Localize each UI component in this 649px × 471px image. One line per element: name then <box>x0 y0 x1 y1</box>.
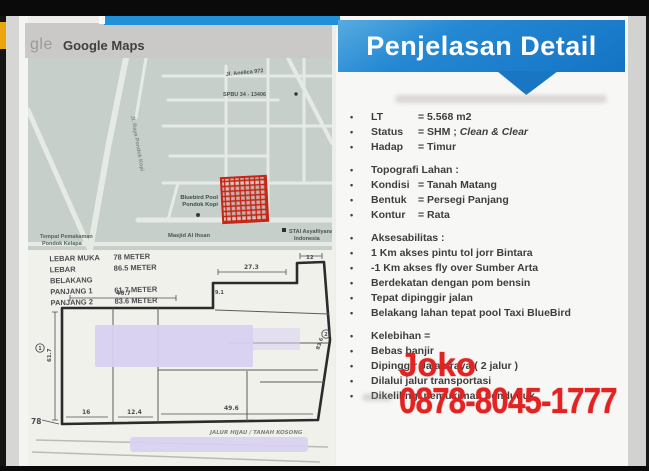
item-text: Tepat dipinggir jalan <box>371 292 473 304</box>
map-bluebird-label-1: Bluebird Pool <box>180 195 218 201</box>
map-road-label: Jl. Raya Pondok Kopi <box>129 115 145 172</box>
item-label: Hadap <box>371 140 418 155</box>
bullet-text: LT= 5.568 m2 <box>371 110 626 125</box>
bullet-item: •Topografi Lahan : <box>350 163 626 178</box>
item-text: Belakang lahan tepat pool Taxi BlueBird <box>371 307 571 319</box>
contact-name: Joko <box>399 346 476 384</box>
bullet-icon: • <box>350 359 371 374</box>
item-label: Bentuk <box>371 193 418 208</box>
dim-back-seg3: 12 <box>306 255 314 261</box>
marker-1: 1 <box>38 346 42 352</box>
bullet-icon: • <box>350 276 371 291</box>
map-cemetery-label-2: Pondok Kelapa <box>42 241 83 247</box>
bullet-icon: • <box>350 291 371 306</box>
blurred-text-line <box>395 95 607 103</box>
sketch-notes: LEBAR MUKA78 METERLEBAR BELAKANG86.5 MET… <box>49 251 157 309</box>
item-text: Kelebihan = <box>371 330 430 342</box>
bullet-text: Hadap= Timur <box>371 140 626 155</box>
right-gray-strip <box>628 16 647 466</box>
map-masjid-label: Masjid Al Ihsan <box>168 233 210 239</box>
bullet-icon: • <box>350 178 371 193</box>
dim-right-side: 83.6 <box>315 337 325 351</box>
bullet-icon: • <box>350 163 371 178</box>
bullet-text: -1 Km akses fly over Sumber Arta <box>371 261 626 276</box>
item-text: 1 Km akses pintu tol jorr Bintara <box>371 247 533 259</box>
note-label: PANJANG 2 <box>50 296 114 309</box>
item-text: Topografi Lahan : <box>371 164 459 176</box>
title-banner: Penjelasan Detail <box>338 20 625 72</box>
bullet-item: •LT= 5.568 m2 <box>350 110 626 125</box>
google-logo-partial: gle <box>30 36 53 54</box>
item-text: Aksesabilitas : <box>371 232 445 244</box>
stai-marker-icon <box>282 228 286 232</box>
google-maps-header: gle Google Maps <box>25 23 332 58</box>
bullet-icon: • <box>350 110 371 125</box>
dim-bottom-seg3: 49.6 <box>224 405 239 412</box>
bullet-group: •LT= 5.568 m2•Status= SHM ; Clean & Clea… <box>350 110 626 155</box>
bullet-text: Status= SHM ; Clean & Clear <box>371 125 626 140</box>
map-stai-label-2: Indonesia <box>294 236 321 242</box>
map-svg: Jl. Anelica 972 SPBU 34 - 13406 Bluebird… <box>28 58 332 250</box>
item-value: = SHM ; <box>418 126 460 138</box>
map-spbu-label: SPBU 34 - 13406 <box>223 92 266 98</box>
bullet-item: •Belakang lahan tepat pool Taxi BlueBird <box>350 306 626 321</box>
dim-step: 9.1 <box>215 290 224 296</box>
dim-back-seg2: 27.3 <box>244 264 259 271</box>
item-value-italic: Clean & Clear <box>460 126 528 138</box>
map-poi-dot-icon <box>196 213 200 217</box>
bullet-icon: • <box>350 261 371 276</box>
bullet-group: •Topografi Lahan :•Kondisi= Tanah Matang… <box>350 163 626 223</box>
item-label: Status <box>371 125 418 140</box>
dim-bottom-seg2: 12.4 <box>127 409 142 416</box>
dim-front-width: 78 <box>31 417 41 426</box>
bullet-icon: • <box>350 374 371 389</box>
bullet-icon: • <box>350 246 371 261</box>
bullet-icon: • <box>350 140 371 155</box>
bullet-item: •Dipinggir Jalan raya ( 2 jalur ) <box>350 359 626 374</box>
bullet-text: Kelebihan = <box>371 329 626 344</box>
bullet-icon: • <box>350 231 371 246</box>
note-value: 86.5 METER <box>114 262 157 285</box>
land-sketch: LEBAR MUKA78 METERLEBAR BELAKANG86.5 MET… <box>28 250 335 466</box>
sketch-road-label: JALUR HIJAU / TANAH KOSONG <box>209 430 303 436</box>
dim-left-side: 61.7 <box>47 348 53 362</box>
slide-content: gle Google Maps <box>0 16 649 466</box>
bullet-text: Tepat dipinggir jalan <box>371 291 626 306</box>
item-value: = Tanah Matang <box>418 179 497 191</box>
left-white-strip <box>19 16 28 466</box>
item-text: Berdekatan dengan pom bensin <box>371 277 530 289</box>
detail-list: •LT= 5.568 m2•Status= SHM ; Clean & Clea… <box>350 110 626 412</box>
screenshot-stage: gle Google Maps <box>0 0 649 471</box>
bullet-item: •Bebas banjir <box>350 344 626 359</box>
item-value: = Timur <box>418 141 456 153</box>
strip-notch <box>99 16 105 24</box>
map-bluebird-label-2: Pondok Kopi <box>182 202 218 208</box>
bullet-item: •Berdekatan dengan pom bensin <box>350 276 626 291</box>
contact-phone: 0878-8045-1777 <box>399 380 617 422</box>
bullet-icon: • <box>350 329 371 344</box>
item-value: = Rata <box>418 209 450 221</box>
spbu-dot-icon <box>294 92 297 95</box>
note-value: 83.6 METER <box>114 295 157 307</box>
bullet-item: •Hadap= Timur <box>350 140 626 155</box>
item-text: -1 Km akses fly over Sumber Arta <box>371 262 538 274</box>
bullet-text: Topografi Lahan : <box>371 163 626 178</box>
bullet-item: •Tepat dipinggir jalan <box>350 291 626 306</box>
bullet-text: Aksesabilitas : <box>371 231 626 246</box>
page-title: Penjelasan Detail <box>366 31 597 62</box>
bullet-item: •-1 Km akses fly over Sumber Arta <box>350 261 626 276</box>
bullet-text: Berdekatan dengan pom bensin <box>371 276 626 291</box>
bullet-item: •1 Km akses pintu tol jorr Bintara <box>350 246 626 261</box>
bullet-icon: • <box>350 208 371 223</box>
google-maps-title: Google Maps <box>63 38 145 53</box>
marker-2: 2 <box>324 332 328 338</box>
bullet-text: Bentuk= Persegi Panjang <box>371 193 626 208</box>
item-label: LT <box>371 110 418 125</box>
item-label: Kondisi <box>371 178 418 193</box>
bullet-item: •Status= SHM ; Clean & Clear <box>350 125 626 140</box>
land-plot-hatch <box>221 176 268 223</box>
map-roads <box>28 58 332 250</box>
item-label: Kontur <box>371 208 418 223</box>
bullet-item: •Bentuk= Persegi Panjang <box>350 193 626 208</box>
item-value: = 5.568 m2 <box>418 111 471 123</box>
bullet-icon: • <box>350 306 371 321</box>
bullet-icon: • <box>350 125 371 140</box>
left-gray-strip <box>6 16 19 466</box>
item-value: = Persegi Panjang <box>418 194 509 206</box>
bullet-item: •Aksesabilitas : <box>350 231 626 246</box>
bullet-icon: • <box>350 193 371 208</box>
bullet-icon: • <box>350 344 371 359</box>
bullet-item: •Kelebihan = <box>350 329 626 344</box>
bullet-text: 1 Km akses pintu tol jorr Bintara <box>371 246 626 261</box>
note-label: LEBAR BELAKANG <box>50 263 115 287</box>
bullet-group: •Aksesabilitas :•1 Km akses pintu tol jo… <box>350 231 626 321</box>
bullet-text: Kondisi= Tanah Matang <box>371 178 626 193</box>
map-image: Jl. Anelica 972 SPBU 34 - 13406 Bluebird… <box>28 58 332 250</box>
bullet-item: •Kondisi= Tanah Matang <box>350 178 626 193</box>
bullet-text: Kontur= Rata <box>371 208 626 223</box>
sketch-note-row: LEBAR BELAKANG86.5 METER <box>50 262 157 287</box>
map-cemetery-label-1: Tempat Pemakaman <box>40 234 93 240</box>
bullet-text: Belakang lahan tepat pool Taxi BlueBird <box>371 306 626 321</box>
map-stai-label-1: STAI Asyafiiyana <box>289 229 332 235</box>
dim-bottom-seg1: 16 <box>82 409 90 416</box>
blue-top-strip <box>104 16 340 25</box>
smudge-mark <box>362 394 392 401</box>
bullet-item: •Kontur= Rata <box>350 208 626 223</box>
